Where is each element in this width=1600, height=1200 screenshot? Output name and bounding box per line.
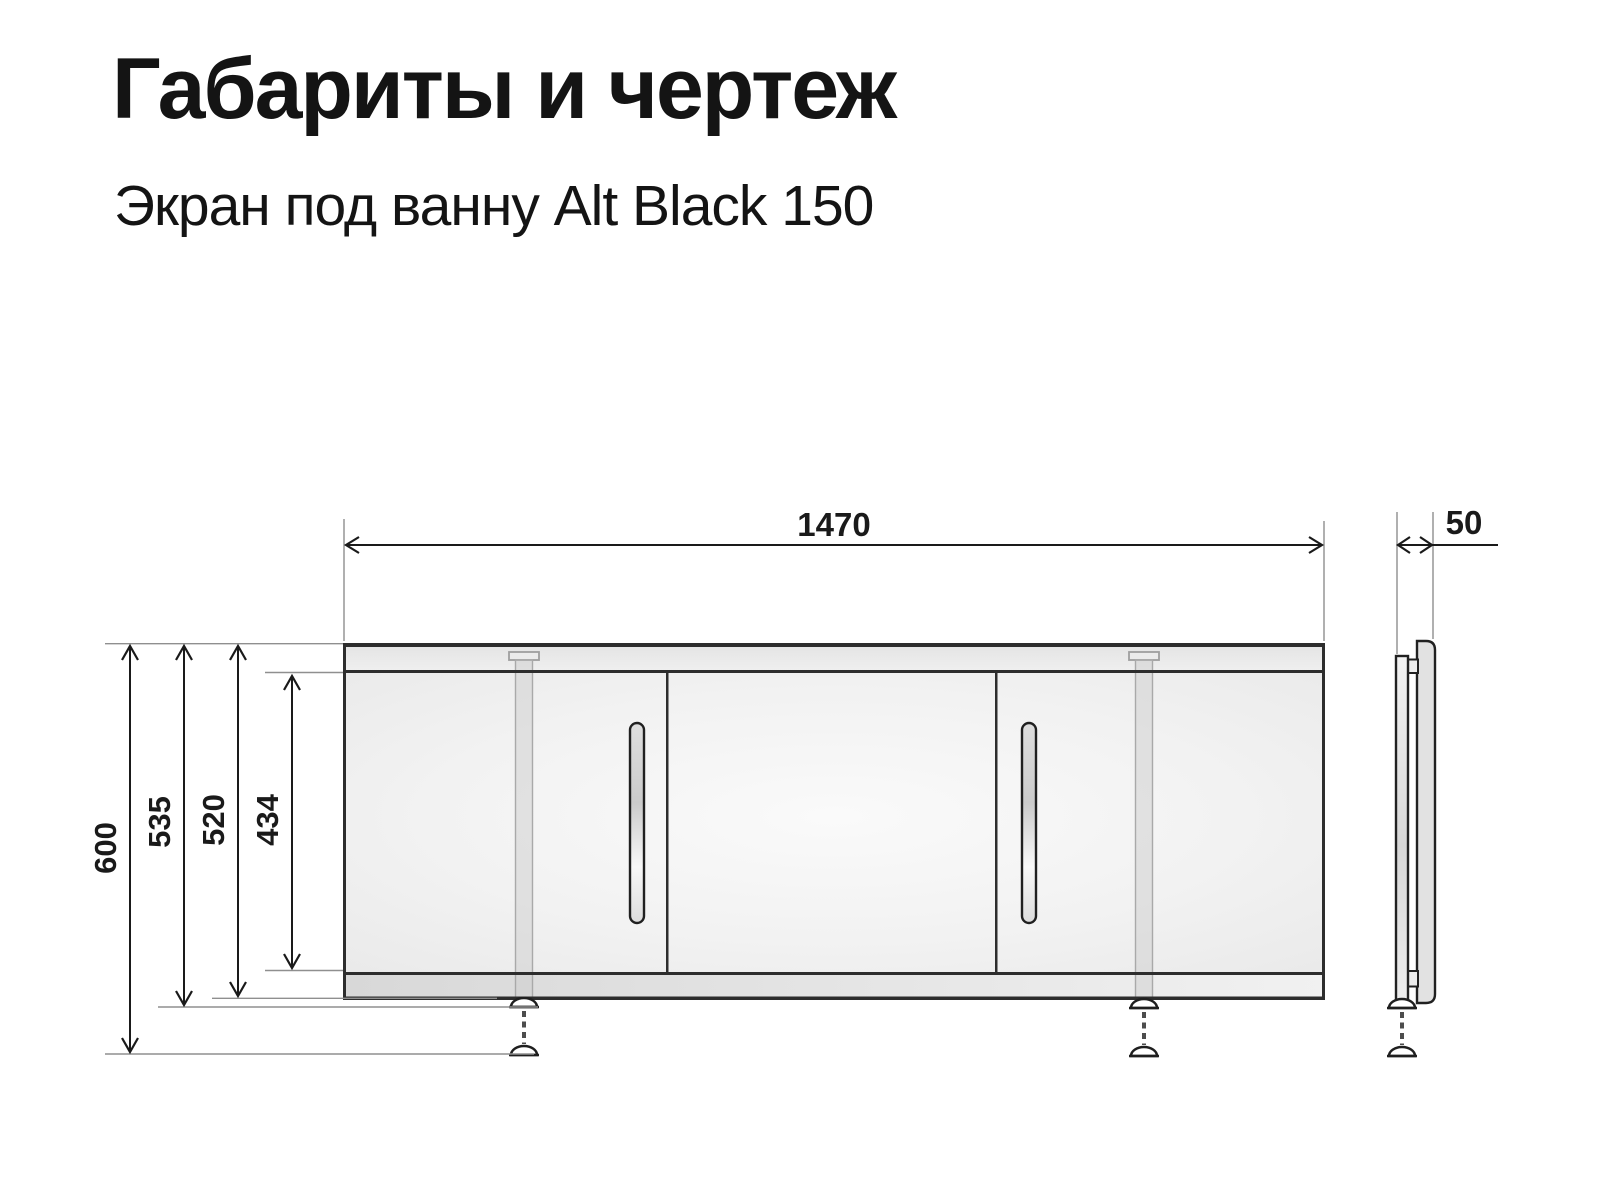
side-panel-bar	[1396, 656, 1408, 1000]
side-view: 50	[1387, 504, 1498, 1056]
technical-drawing: 1470 600	[0, 0, 1600, 1200]
left-leg-shaft	[516, 660, 533, 1001]
dim-total-height-label: 600	[88, 822, 123, 874]
side-foot	[1387, 999, 1417, 1056]
right-door-handle	[1022, 723, 1036, 923]
left-leg-bracket	[509, 652, 539, 660]
dimension-panel-height	[230, 646, 246, 996]
dimension-body-height	[284, 676, 300, 968]
page: Габариты и чертеж Экран под ванну Alt Bl…	[0, 0, 1600, 1200]
right-leg-shaft	[1136, 660, 1153, 1001]
dimension-width: 1470	[344, 506, 1324, 641]
right-foot	[1129, 999, 1159, 1056]
bottom-rail	[343, 972, 1325, 1000]
left-door-handle	[630, 723, 644, 923]
side-frame-rail	[1417, 641, 1435, 1003]
front-view	[343, 643, 1325, 1056]
top-rail	[343, 643, 1325, 673]
dimension-depth: 50	[1397, 504, 1498, 654]
panel-body	[343, 673, 1325, 972]
dim-panel-height-label: 520	[196, 794, 231, 846]
dim-width-label: 1470	[797, 506, 870, 543]
dimension-total-height	[122, 646, 138, 1052]
dim-height-with-feet-label: 535	[142, 796, 177, 848]
dim-body-height-label: 434	[250, 793, 285, 845]
left-door-divider	[666, 673, 669, 972]
dimension-height-with-feet	[176, 646, 192, 1005]
right-leg-bracket	[1129, 652, 1159, 660]
right-door-divider	[995, 673, 998, 972]
dim-depth-label: 50	[1446, 504, 1483, 541]
